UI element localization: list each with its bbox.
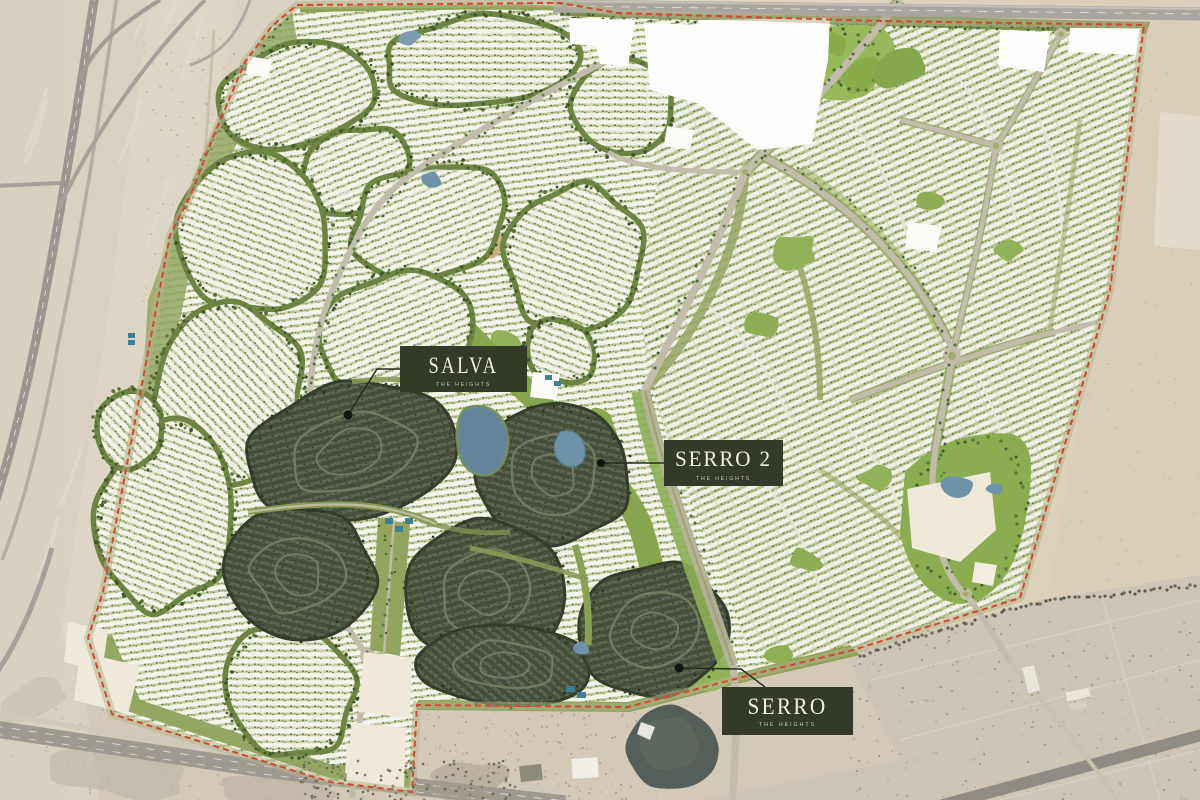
svg-text:SERRO: SERRO — [748, 694, 828, 719]
svg-text:THE HEIGHTS: THE HEIGHTS — [696, 476, 751, 482]
svg-text:THE HEIGHTS: THE HEIGHTS — [759, 722, 816, 728]
svg-text:SALVA: SALVA — [429, 353, 499, 378]
svg-text:SERRO 2: SERRO 2 — [675, 446, 772, 471]
svg-text:THE HEIGHTS: THE HEIGHTS — [436, 382, 491, 388]
